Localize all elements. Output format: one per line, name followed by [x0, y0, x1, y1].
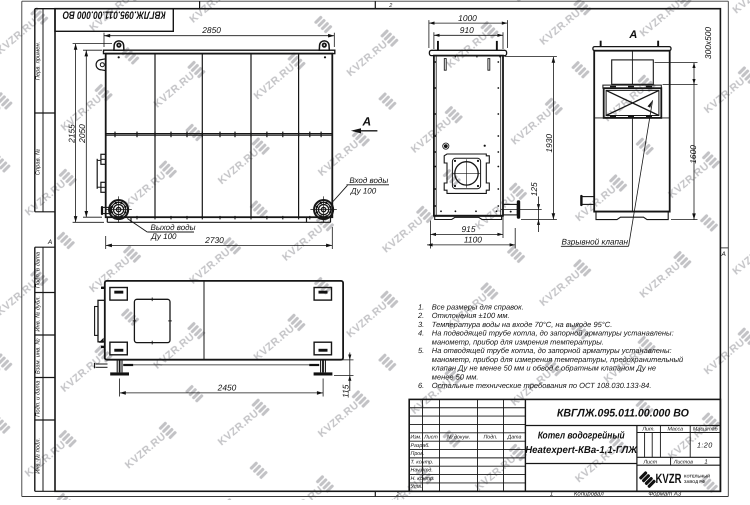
svg-text:Подп. и дата: Подп. и дата — [34, 251, 41, 288]
svg-text:1930: 1930 — [544, 134, 554, 153]
svg-text:6.: 6. — [418, 381, 424, 390]
svg-text:Перв. примен.: Перв. примен. — [35, 42, 41, 81]
svg-text:Ду 100: Ду 100 — [350, 186, 377, 195]
svg-text:Heatexpert-КВа-1,1-ГЛЖ: Heatexpert-КВа-1,1-ГЛЖ — [525, 445, 638, 456]
svg-text:А: А — [361, 114, 371, 128]
svg-text:А: А — [721, 251, 726, 258]
svg-text:Взрывной клапан: Взрывной клапан — [562, 237, 629, 246]
svg-text:На отводящей трубе котла, до з: На отводящей трубе котла, до запорной ар… — [432, 346, 672, 355]
svg-text:КВГЛЖ.095.011.00.000 ВО: КВГЛЖ.095.011.00.000 ВО — [62, 9, 165, 21]
svg-text:Масса: Масса — [667, 426, 683, 432]
svg-text:Температура воды на входе 70°С: Температура воды на входе 70°С, на выход… — [432, 320, 612, 329]
svg-text:2.: 2. — [417, 311, 424, 320]
svg-text:5.: 5. — [418, 346, 424, 355]
svg-text:125: 125 — [529, 182, 539, 196]
svg-text:Подп.: Подп. — [483, 435, 497, 441]
svg-text:Пров.: Пров. — [411, 451, 425, 457]
svg-text:2155: 2155 — [66, 124, 76, 144]
svg-text:115: 115 — [340, 384, 350, 398]
svg-text:Подп. и дата: Подп. и дата — [34, 380, 41, 417]
svg-text:Утв.: Утв. — [411, 484, 423, 490]
svg-text:Масштаб: Масштаб — [693, 426, 719, 432]
svg-text:Ду 100: Ду 100 — [150, 232, 177, 241]
svg-text:Инв. № дубл.: Инв. № дубл. — [34, 296, 41, 332]
svg-text:Вход воды: Вход воды — [349, 176, 388, 185]
svg-text:1: 1 — [704, 458, 707, 465]
svg-text:1100: 1100 — [464, 235, 482, 245]
svg-text:Листов: Листов — [673, 459, 694, 465]
svg-text:Отклонения ±100 мм.: Отклонения ±100 мм. — [432, 311, 510, 320]
svg-text:манометр, прибор для измрения: манометр, прибор для измрения температур… — [432, 337, 604, 346]
svg-text:Лист: Лист — [643, 459, 658, 465]
svg-text:2850: 2850 — [201, 25, 221, 35]
svg-text:915: 915 — [462, 224, 476, 234]
svg-text:ЗАВОД РФ: ЗАВОД РФ — [684, 479, 706, 484]
svg-text:1.: 1. — [418, 302, 424, 311]
svg-text:1600: 1600 — [688, 145, 698, 164]
svg-text:1:20: 1:20 — [697, 440, 713, 449]
svg-text:2050: 2050 — [77, 124, 87, 144]
svg-text:Н. контр.: Н. контр. — [411, 476, 435, 482]
svg-text:4.: 4. — [418, 329, 424, 338]
svg-text:1000: 1000 — [458, 13, 477, 23]
svg-text:На подводящей трубе котла, до: На подводящей трубе котла, до запорной а… — [432, 329, 674, 338]
svg-text:манометр, прибор для измерения: манометр, прибор для измерения температу… — [432, 355, 684, 364]
svg-text:менее 50 мм.: менее 50 мм. — [432, 372, 479, 381]
svg-text:Котел водогрейный: Котел водогрейный — [538, 430, 625, 441]
svg-text:№ докум.: № докум. — [447, 435, 470, 441]
svg-text:Справ. №: Справ. № — [34, 148, 41, 175]
svg-text:910: 910 — [460, 25, 474, 35]
svg-text:2: 2 — [388, 3, 392, 9]
svg-text:KVZR: KVZR — [656, 471, 682, 486]
svg-text:Разраб.: Разраб. — [411, 443, 430, 449]
svg-text:А: А — [47, 239, 52, 246]
svg-text:А: А — [628, 29, 637, 41]
svg-text:Все размеры для справок.: Все размеры для справок. — [432, 302, 524, 311]
svg-text:300х500: 300х500 — [703, 27, 713, 59]
svg-text:Дата: Дата — [507, 435, 522, 441]
svg-text:Лист: Лист — [423, 435, 438, 441]
svg-text:клапан Ду не менее 50 мм и обв: клапан Ду не менее 50 мм и обвод с обрат… — [432, 364, 656, 373]
svg-text:3.: 3. — [418, 320, 424, 329]
svg-text:2: 2 — [395, 492, 399, 498]
svg-text:Т. контр.: Т. контр. — [411, 459, 434, 465]
svg-text:Взам. инв. №: Взам. инв. № — [35, 338, 41, 375]
svg-text:КВГЛЖ.095.011.00.000 ВО: КВГЛЖ.095.011.00.000 ВО — [557, 408, 689, 420]
svg-text:Инв. № подл.: Инв. № подл. — [34, 438, 41, 474]
svg-text:КОТЕЛЬНЫЙ: КОТЕЛЬНЫЙ — [684, 474, 710, 479]
svg-text:Лит.: Лит. — [641, 426, 654, 432]
svg-text:Нач.отд.: Нач.отд. — [411, 468, 433, 474]
svg-text:2730: 2730 — [204, 235, 224, 245]
svg-text:Остальные технические требован: Остальные технические требования по ОСТ … — [432, 381, 652, 390]
svg-text:2450: 2450 — [217, 382, 237, 392]
svg-text:Изм.: Изм. — [410, 435, 421, 441]
